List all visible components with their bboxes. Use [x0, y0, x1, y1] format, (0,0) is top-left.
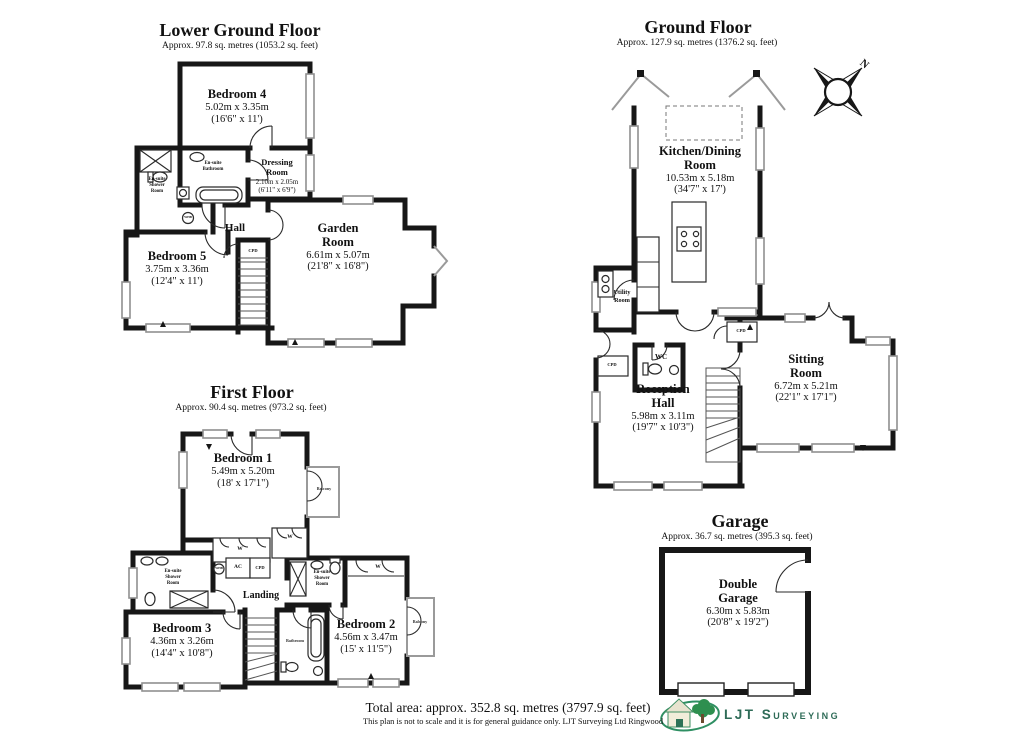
room-name: Sitting [774, 353, 838, 367]
room-name: Room [148, 189, 165, 195]
first-floor-subtitle: Approx. 90.4 sq. metres (973.2 sq. feet) [175, 403, 326, 414]
whb-label: WHB [215, 567, 223, 571]
wardrobe-label: W [287, 534, 293, 540]
room-label-ensuite-bathroom: En-suite Bathroom [203, 161, 224, 173]
room-name: Utility [614, 289, 631, 297]
lower-ground-floor-plan [122, 64, 447, 347]
room-dims-metric: 5.02m x 3.35m [205, 102, 269, 114]
room-label-double-garage: Double Garage 6.30m x 5.83m (20'8" x 19'… [706, 578, 770, 629]
window [343, 196, 373, 204]
room-name: Bedroom 1 [211, 452, 275, 466]
window [256, 430, 280, 438]
room-dims-metric: 4.56m x 3.47m [334, 632, 398, 644]
window [373, 679, 399, 687]
window [718, 308, 756, 316]
garage-title: Garage [712, 511, 769, 532]
room-label-bedroom-1: Bedroom 1 5.49m x 5.20m (18' x 17'1") [211, 452, 275, 489]
total-area-text: Total area: approx. 352.8 sq. metres (37… [365, 700, 650, 716]
window [630, 126, 638, 168]
garage-subtitle: Approx. 36.7 sq. metres (395.3 sq. feet) [661, 532, 812, 543]
staircase [238, 258, 268, 325]
window [122, 282, 130, 318]
room-label-bedroom-2: Bedroom 2 4.56m x 3.47m (15' x 11'5") [334, 618, 398, 655]
room-label-landing: Landing [243, 590, 279, 602]
room-name: Room [659, 159, 741, 173]
window [889, 356, 897, 430]
airing-cupboard-label: AC [234, 564, 242, 570]
room-dims-metric: 3.75m x 3.36m [145, 264, 209, 276]
kitchen-island [637, 202, 706, 312]
room-dims-metric: 2.10m x 2.05m [256, 178, 298, 186]
room-dims-metric: 5.98m x 3.11m [631, 411, 694, 423]
room-dims-metric: 6.72m x 5.21m [774, 381, 838, 393]
window [756, 238, 764, 284]
window [614, 482, 652, 490]
lower-ground-title: Lower Ground Floor [159, 20, 320, 41]
window [129, 568, 137, 598]
vaulted-ceiling-outline [666, 106, 742, 140]
room-label-reception-hall: Reception Hall 5.98m x 3.11m (19'7" x 10… [631, 383, 694, 434]
room-name: Bedroom 2 [334, 618, 398, 632]
window [306, 155, 314, 191]
room-dims-imperial: (22'1" x 17'1") [774, 392, 838, 404]
floorplan-page: Lower Ground Floor Approx. 97.8 sq. metr… [0, 0, 1024, 733]
window [184, 683, 220, 691]
whb-label: WHB [184, 216, 192, 220]
room-name: Garden [306, 222, 370, 236]
room-label-bedroom-3: Bedroom 3 4.36m x 3.26m (14'4" x 10'8") [150, 622, 214, 659]
room-dims-metric: 6.61m x 5.07m [306, 250, 370, 262]
wardrobe-label: W [237, 546, 243, 552]
room-label-sitting-room: Sitting Room 6.72m x 5.21m (22'1" x 17'1… [774, 353, 838, 404]
ground-title: Ground Floor [644, 17, 751, 38]
room-label-ensuite-shower: En-suite Shower Room [148, 177, 165, 196]
cpd-label: CPD [255, 565, 264, 570]
wardrobe-label: W [375, 564, 381, 570]
balcony [407, 598, 434, 656]
room-name: Room [614, 297, 631, 305]
room-label-wc: WC [655, 353, 667, 361]
room-label-hall: Hall [225, 222, 245, 235]
disclaimer-text: This plan is not to scale and it is for … [363, 717, 663, 727]
window [812, 444, 854, 452]
room-dims-imperial: (34'7" x 17') [659, 184, 741, 196]
room-dims-metric: 4.36m x 3.26m [150, 636, 214, 648]
room-name: Bathroom [203, 167, 224, 173]
window [664, 482, 702, 490]
bathroom-fixtures [281, 615, 324, 676]
lower-ground-subtitle: Approx. 97.8 sq. metres (1053.2 sq. feet… [162, 41, 318, 52]
room-dims-imperial: (15' x 11'5") [334, 644, 398, 656]
room-label-dressing-room: Dressing Room 2.10m x 2.05m (6'11" x 6'9… [256, 158, 298, 194]
wall-marker [368, 673, 374, 679]
room-name: Room [306, 236, 370, 250]
room-name: Bedroom 3 [150, 622, 214, 636]
room-label-kitchen-dining: Kitchen/Dining Room 10.53m x 5.18m (34'7… [659, 145, 741, 196]
window [122, 638, 130, 664]
ground-subtitle: Approx. 127.9 sq. metres (1376.2 sq. fee… [617, 38, 778, 49]
first-floor-title: First Floor [210, 382, 293, 403]
window [756, 128, 764, 170]
room-label-bedroom-5: Bedroom 5 3.75m x 3.36m (12'4" x 11') [145, 250, 209, 287]
logo-icon [659, 698, 720, 733]
window [866, 337, 890, 345]
cpd-label: CPD [736, 328, 745, 333]
window [203, 430, 227, 438]
wc-fixtures [643, 363, 679, 375]
window [306, 74, 314, 138]
room-name: Double [706, 578, 770, 592]
room-name: Room [256, 168, 298, 178]
room-name: Bedroom 5 [145, 250, 209, 264]
room-dims-imperial: (20'8" x 19'2") [706, 617, 770, 629]
room-name: Kitchen/Dining [659, 145, 741, 159]
room-dims-imperial: (6'11" x 6'9") [256, 186, 298, 194]
room-name: Hall [631, 397, 694, 411]
staircase [706, 368, 740, 462]
room-name: Reception [631, 383, 694, 397]
room-label-garden-room: Garden Room 6.61m x 5.07m (21'8" x 16'8"… [306, 222, 370, 273]
room-dims-metric: 5.49m x 5.20m [211, 466, 275, 478]
cpd-label: CPD [607, 362, 616, 367]
room-label-bathroom: Bathroom [286, 639, 304, 644]
garage-door [748, 683, 794, 696]
room-dims-imperial: (21'8" x 16'8") [306, 261, 370, 273]
window [179, 452, 187, 488]
room-name: Bedroom 4 [205, 88, 269, 102]
compass-rose [814, 68, 862, 116]
window [785, 314, 805, 322]
balcony [307, 467, 339, 517]
balcony-label: Balcony [413, 620, 427, 625]
room-name: Room [164, 581, 181, 587]
window [757, 444, 799, 452]
room-dims-metric: 6.30m x 5.83m [706, 606, 770, 618]
window [338, 679, 368, 687]
wall-marker [206, 444, 212, 450]
balcony-label: Balcony [317, 487, 331, 492]
room-label-bedroom-4: Bedroom 4 5.02m x 3.35m (16'6" x 11') [205, 88, 269, 125]
room-label-ensuite-shower-right: En-suite Shower Room [313, 570, 330, 589]
staircase [245, 618, 277, 680]
bay-window [434, 246, 447, 276]
logo-text: LJT Surveying [724, 707, 840, 722]
glazed-gables [612, 74, 785, 110]
garage-door [678, 683, 724, 696]
room-name: Room [774, 367, 838, 381]
door-arc [776, 560, 808, 592]
room-dims-imperial: (19'7" x 10'3") [631, 422, 694, 434]
room-name: Garage [706, 592, 770, 606]
room-label-utility: Utility Room [614, 289, 631, 305]
room-name: Room [313, 582, 330, 588]
utility-sink [598, 271, 613, 297]
cpd-label: CPD [248, 248, 257, 253]
window [142, 683, 178, 691]
room-dims-imperial: (14'4" x 10'8") [150, 648, 214, 660]
window [592, 392, 600, 422]
room-dims-imperial: (12'4" x 11') [145, 276, 209, 288]
window [146, 324, 190, 332]
room-dims-metric: 10.53m x 5.18m [659, 173, 741, 185]
window [336, 339, 372, 347]
room-dims-imperial: (16'6" x 11') [205, 114, 269, 126]
room-label-ensuite-shower-left: En-suite Shower Room [164, 569, 181, 588]
room-dims-imperial: (18' x 17'1") [211, 478, 275, 490]
